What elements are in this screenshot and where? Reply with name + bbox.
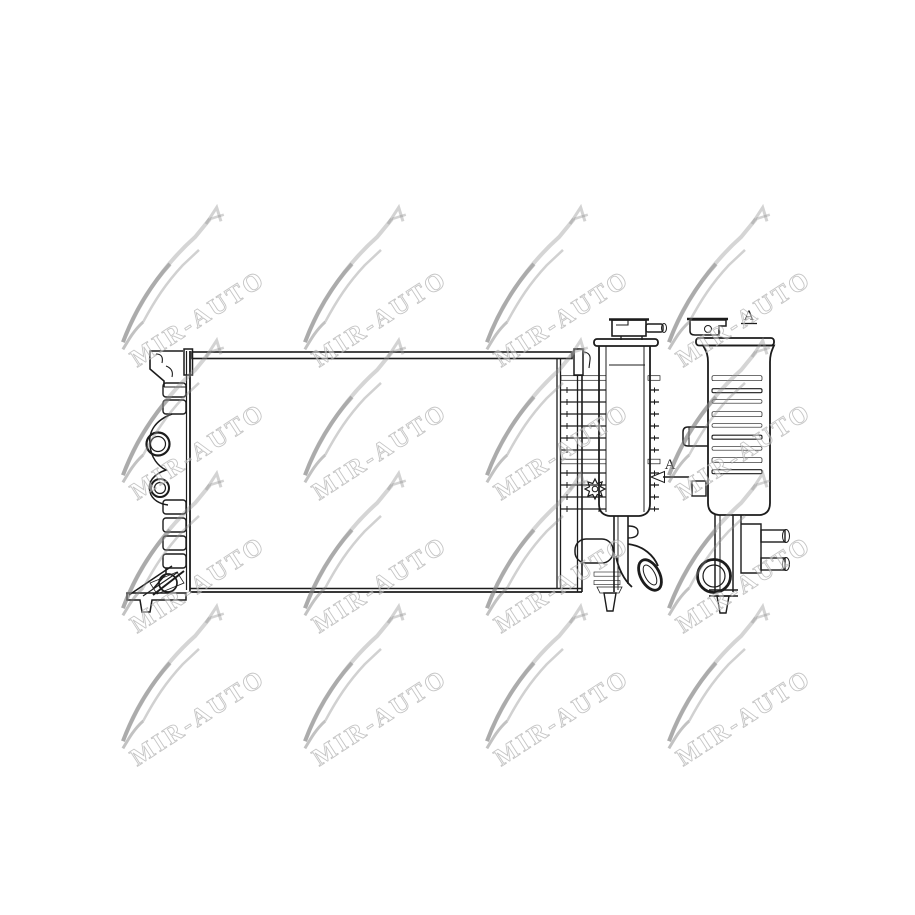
lower-hose-port: [151, 479, 169, 497]
view-a-drain-peg: [717, 596, 729, 613]
radiator-technical-drawing: A: [0, 0, 915, 915]
side-tank-view: [575, 320, 667, 612]
radiator-front-view: [127, 349, 606, 612]
view-a-body: [703, 346, 774, 516]
left-mounting-foot: [127, 566, 186, 612]
outlet-peg-upper: [761, 530, 785, 542]
thermo-switch: [585, 479, 605, 499]
left-tank: [127, 351, 186, 612]
side-drain-peg: [604, 593, 616, 611]
product-drawing-canvas: A: [0, 0, 915, 915]
core-top-header: [192, 352, 572, 359]
detail-view-a: A: [683, 308, 790, 613]
side-tank-body: [599, 346, 650, 516]
section-arrow: A: [651, 457, 689, 483]
outlet-pipe-opening: [634, 556, 666, 594]
outlet-peg-lower: [761, 558, 785, 570]
arrow-label: A: [665, 457, 676, 473]
view-a-label: A: [744, 308, 755, 324]
filler-cap: [612, 320, 646, 336]
left-tank-rib-tabs: [163, 383, 186, 568]
view-a-ribs: [712, 376, 762, 474]
